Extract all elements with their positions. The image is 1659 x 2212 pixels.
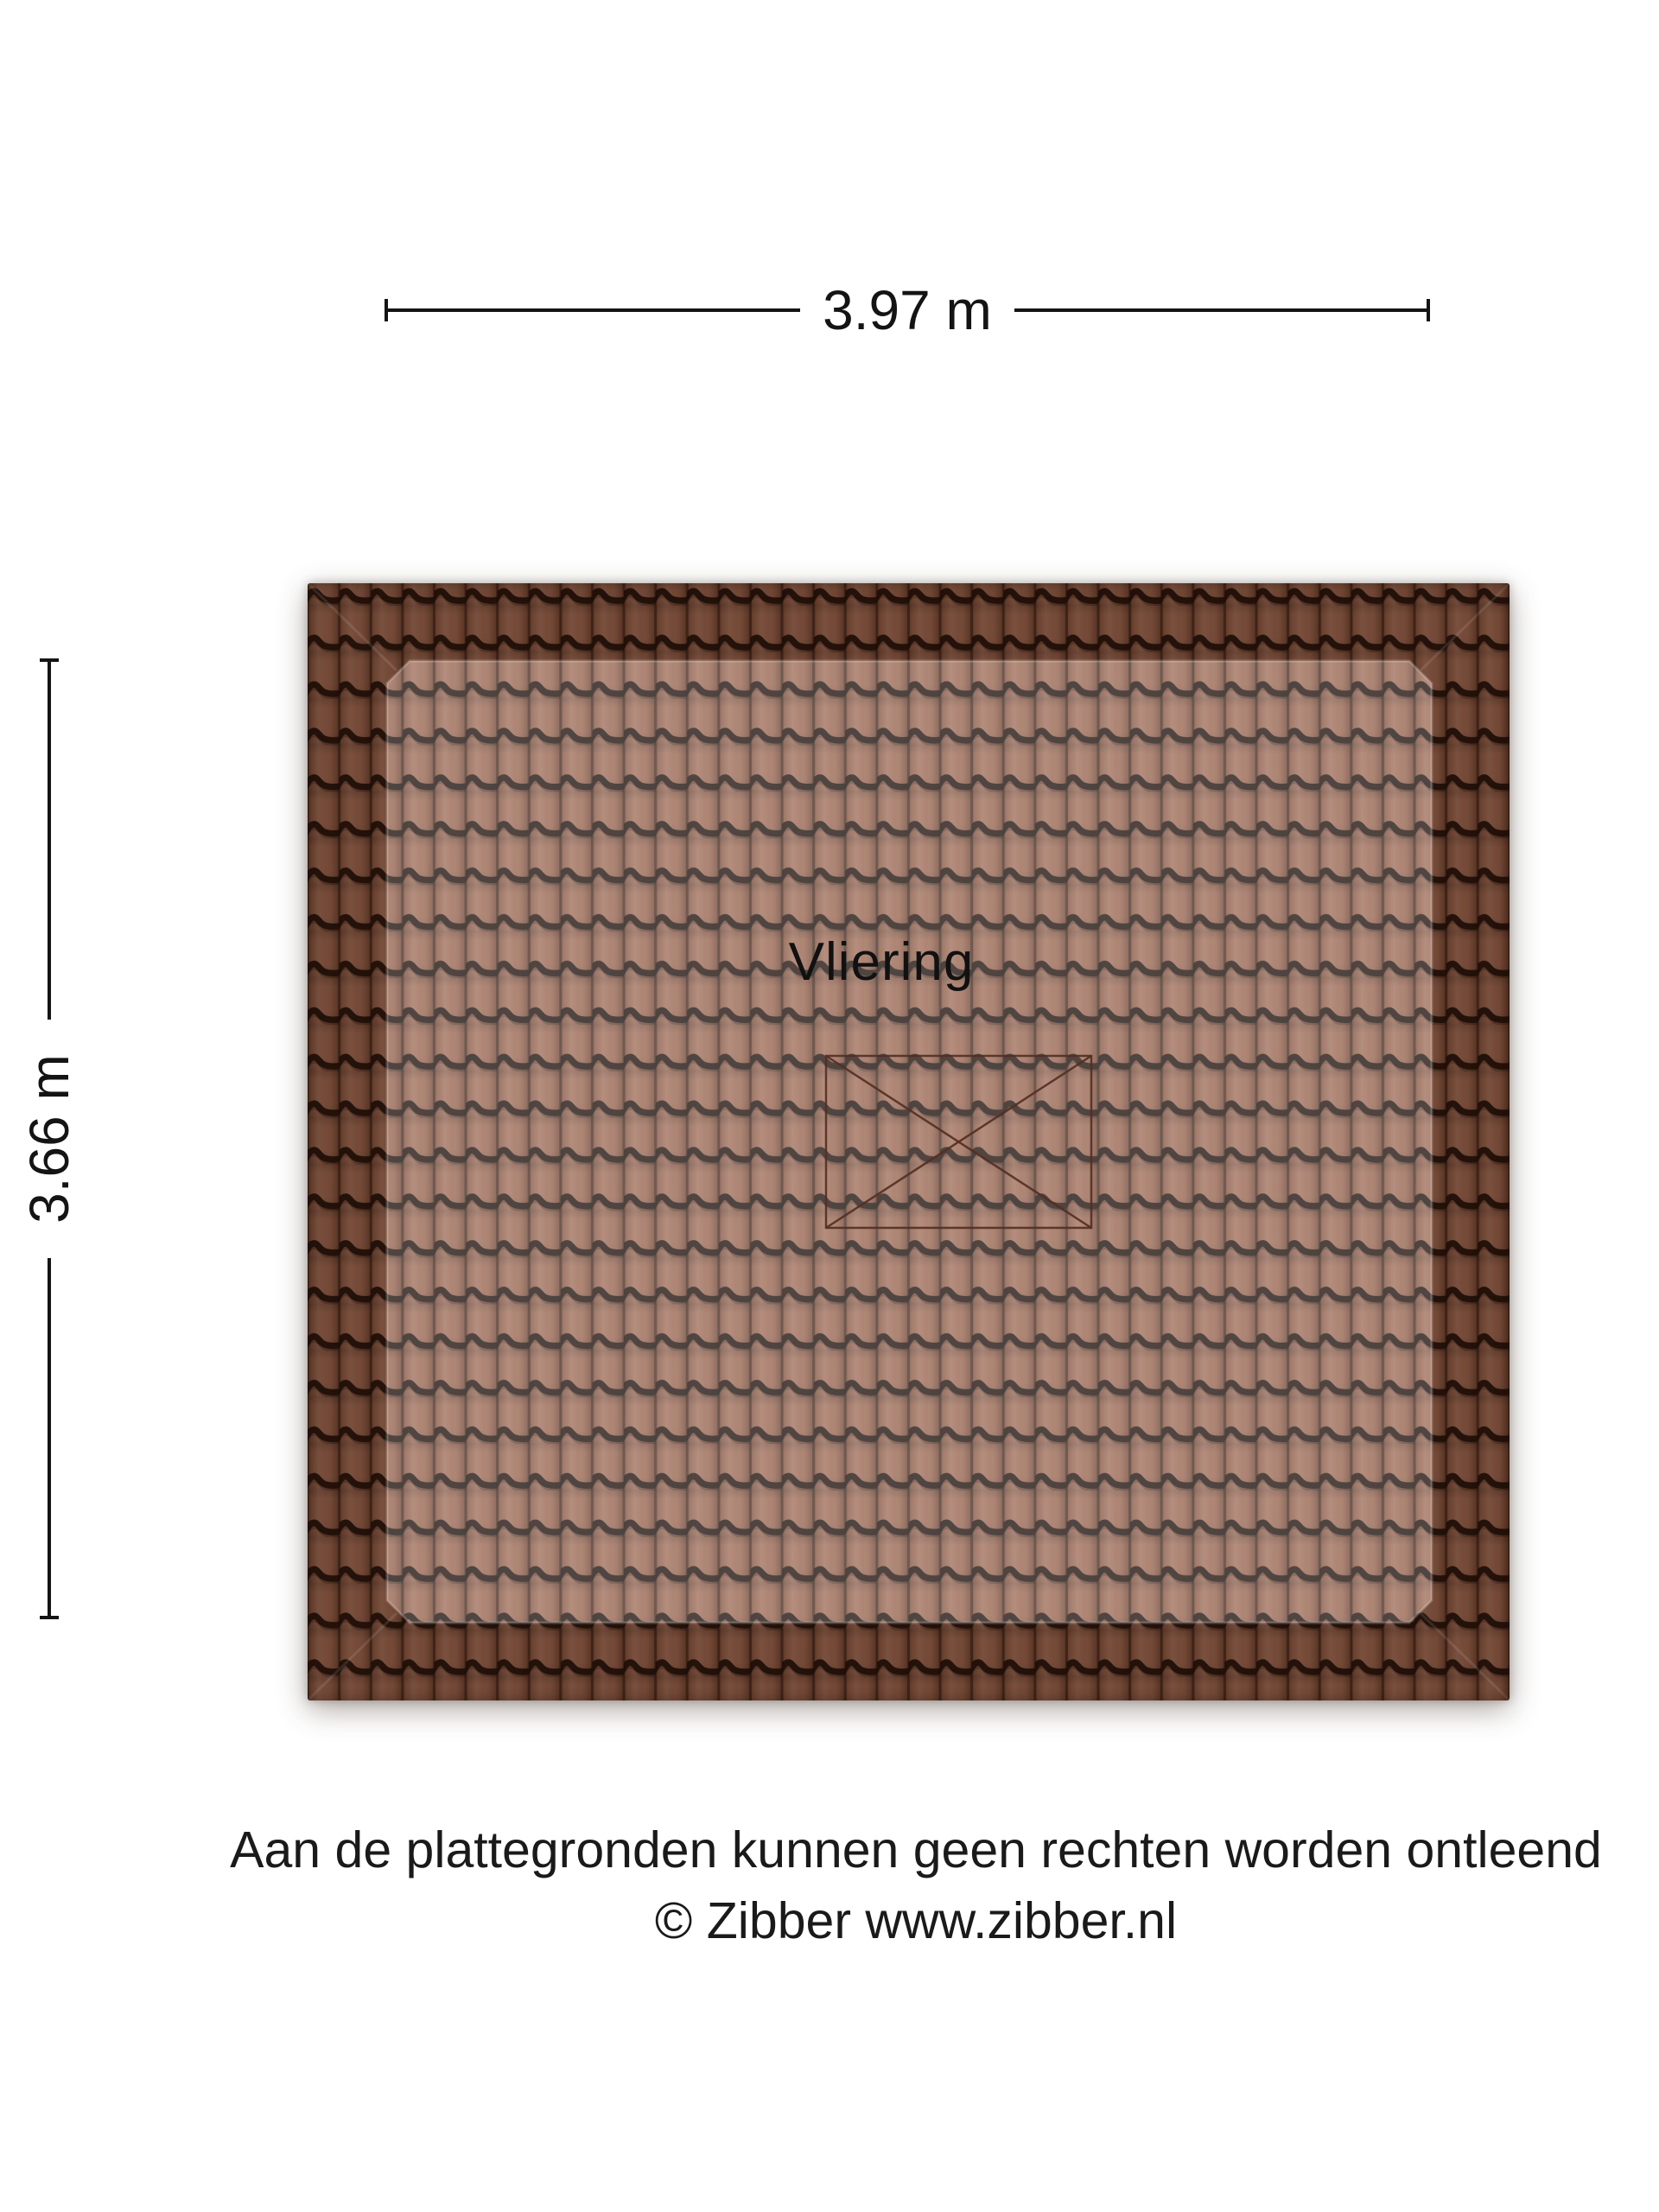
footer: Aan de plattegronden kunnen geen rechten…	[173, 1815, 1659, 1956]
dimension-line-segment	[48, 1258, 51, 1616]
dimension-height: 3.66 m	[22, 658, 77, 1619]
dimension-tick-right	[1427, 299, 1430, 321]
dimension-tick-bottom	[40, 1616, 59, 1619]
room-label: Vliering	[665, 935, 1097, 990]
dimension-width: 3.97 m	[385, 288, 1430, 333]
floorplan-canvas	[308, 583, 1510, 1700]
dimension-line-segment	[1014, 308, 1427, 312]
dimension-height-label: 3.66 m	[22, 1054, 77, 1224]
dimension-line-segment	[388, 308, 800, 312]
dimension-width-label: 3.97 m	[800, 288, 1014, 333]
footer-copyright: © Zibber www.zibber.nl	[173, 1885, 1659, 1956]
dimension-height-label-wrap: 3.66 m	[22, 1020, 77, 1258]
dimension-line-segment	[48, 662, 51, 1020]
floorplan-page: 3.97 m 3.66 m	[0, 0, 1659, 2212]
roof-texture	[308, 583, 1510, 1700]
footer-disclaimer: Aan de plattegronden kunnen geen rechten…	[173, 1815, 1659, 1885]
room-area	[387, 661, 1432, 1623]
